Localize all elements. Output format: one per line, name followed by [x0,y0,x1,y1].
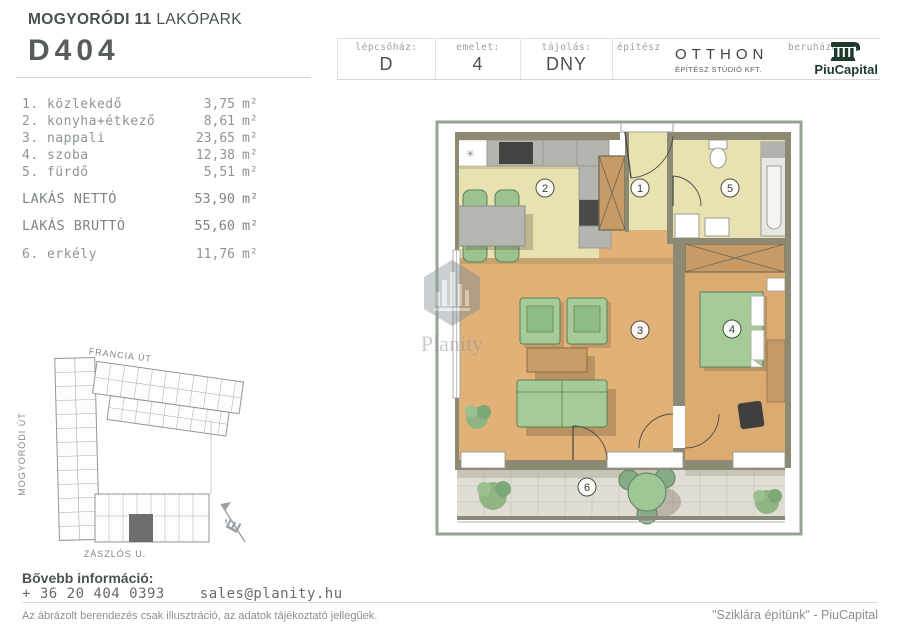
net-area-row: LAKÁS NETTÓ 53,90 m² [22,191,268,208]
footer-info-label: Bővebb információ: [22,570,153,586]
project-title-bold: MOGYORÓDI 11 [28,11,152,28]
room-label-3: 3 [637,325,643,337]
site-top-wing [89,361,243,437]
left-window [453,250,460,398]
room-area-unit: m² [235,96,268,113]
street-label-mogyorodi: MOGYORÓDI ÚT [17,412,27,496]
stove [499,142,533,164]
info-cell-staircase: lépcsőház: D [337,39,435,79]
room-area: 3,75 [183,96,235,113]
room-label-6: 6 [584,482,590,494]
unit-underline [16,77,311,78]
datasheet-page: MOGYORÓDI 11 LAKÓPARK D404 lépcsőház: D … [0,0,900,636]
shaft [599,156,625,230]
room-label-1: 1 [637,183,643,195]
room-area-unit: m² [235,113,268,130]
info-cell-developer: beruházó PiuCapital [784,39,880,79]
room-area: 5,51 [183,164,235,181]
site-plan: FRANCIA ÚT MOGYORÓDI ÚT ZÁSZLÓS U. É [15,346,260,564]
unit-id: D404 [28,34,120,68]
desk-chair [737,400,764,429]
balcony-table [628,473,666,511]
sink [705,218,729,236]
room-area-unit: m² [235,164,268,181]
room-label-5: 5 [727,183,733,195]
balcony-row: 6. erkély 11,76 m² [22,246,268,263]
info-cell-architect: építész OTTHON ÉPÍTÉSZ STÚDIÓ KFT. [612,39,784,79]
north-letter: É [221,515,245,535]
info-cell-orientation: tájolás: DNY [520,39,612,79]
room-area-unit: m² [235,147,268,164]
room-row: 1. közlekedő 3,75 m² [22,96,268,113]
footer-slogan: "Sziklára építünk" - PiuCapital [712,608,878,622]
room-list: 1. közlekedő 3,75 m² 2. konyha+étkező 8,… [22,96,268,263]
staircase-value: D [338,54,435,75]
footer-divider [22,602,878,603]
orientation-label: tájolás: [521,42,612,53]
staircase-label: lépcsőház: [338,42,435,53]
room-row: 3. nappali 23,65 m² [22,130,268,147]
floor-value: 4 [436,54,520,75]
nightstand [767,278,785,291]
site-left-wing [55,357,100,540]
gross-area-row: LAKÁS BRUTTÓ 55,60 m² [22,218,268,235]
architect-logo-name: OTTHON [675,46,768,63]
footer-phone: + 36 20 404 0393 [22,586,165,602]
footer-disclaimer: Az ábrázolt berendezés csak illusztráció… [22,610,377,622]
ceiling-light-icon: ✳ [466,149,474,160]
room-row: 4. szoba 12,38 m² [22,147,268,164]
north-compass-icon: É [221,502,245,542]
room-area-unit: m² [235,130,268,147]
room-area: 12,38 [183,147,235,164]
desk [767,340,785,402]
info-cell-floor: emelet: 4 [435,39,520,79]
orientation-value: DNY [521,54,612,75]
room-row: 2. konyha+étkező 8,61 m² [22,113,268,130]
floor-plan: ✳ [433,118,805,538]
developer-logo-name: PiuCapital [814,62,878,77]
room-area: 23,65 [183,130,235,147]
footer-contact: + 36 20 404 0393 sales@planity.hu [22,586,343,602]
coffee-table [527,348,587,372]
room-area: 8,61 [183,113,235,130]
architect-label: építész [617,42,661,53]
room-row: 5. fürdő 5,51 m² [22,164,268,181]
room-label-2: 2 [542,183,548,195]
toilet [710,148,726,168]
highlighted-unit [129,514,153,542]
architect-logo-sub: ÉPÍTÉSZ STÚDIÓ KFT. [675,65,762,74]
unit-info-table: lépcsőház: D emelet: 4 tájolás: DNY épít… [337,38,880,80]
street-label-zaszlos: ZÁSZLÓS U. [84,549,147,559]
washer [675,214,699,238]
project-title-light: LAKÓPARK [156,11,242,28]
project-title: MOGYORÓDI 11 LAKÓPARK [28,11,242,29]
floor-label: emelet: [436,42,520,53]
bathtub [767,166,781,229]
footer-email: sales@planity.hu [200,586,343,602]
room-label-4: 4 [729,324,735,336]
